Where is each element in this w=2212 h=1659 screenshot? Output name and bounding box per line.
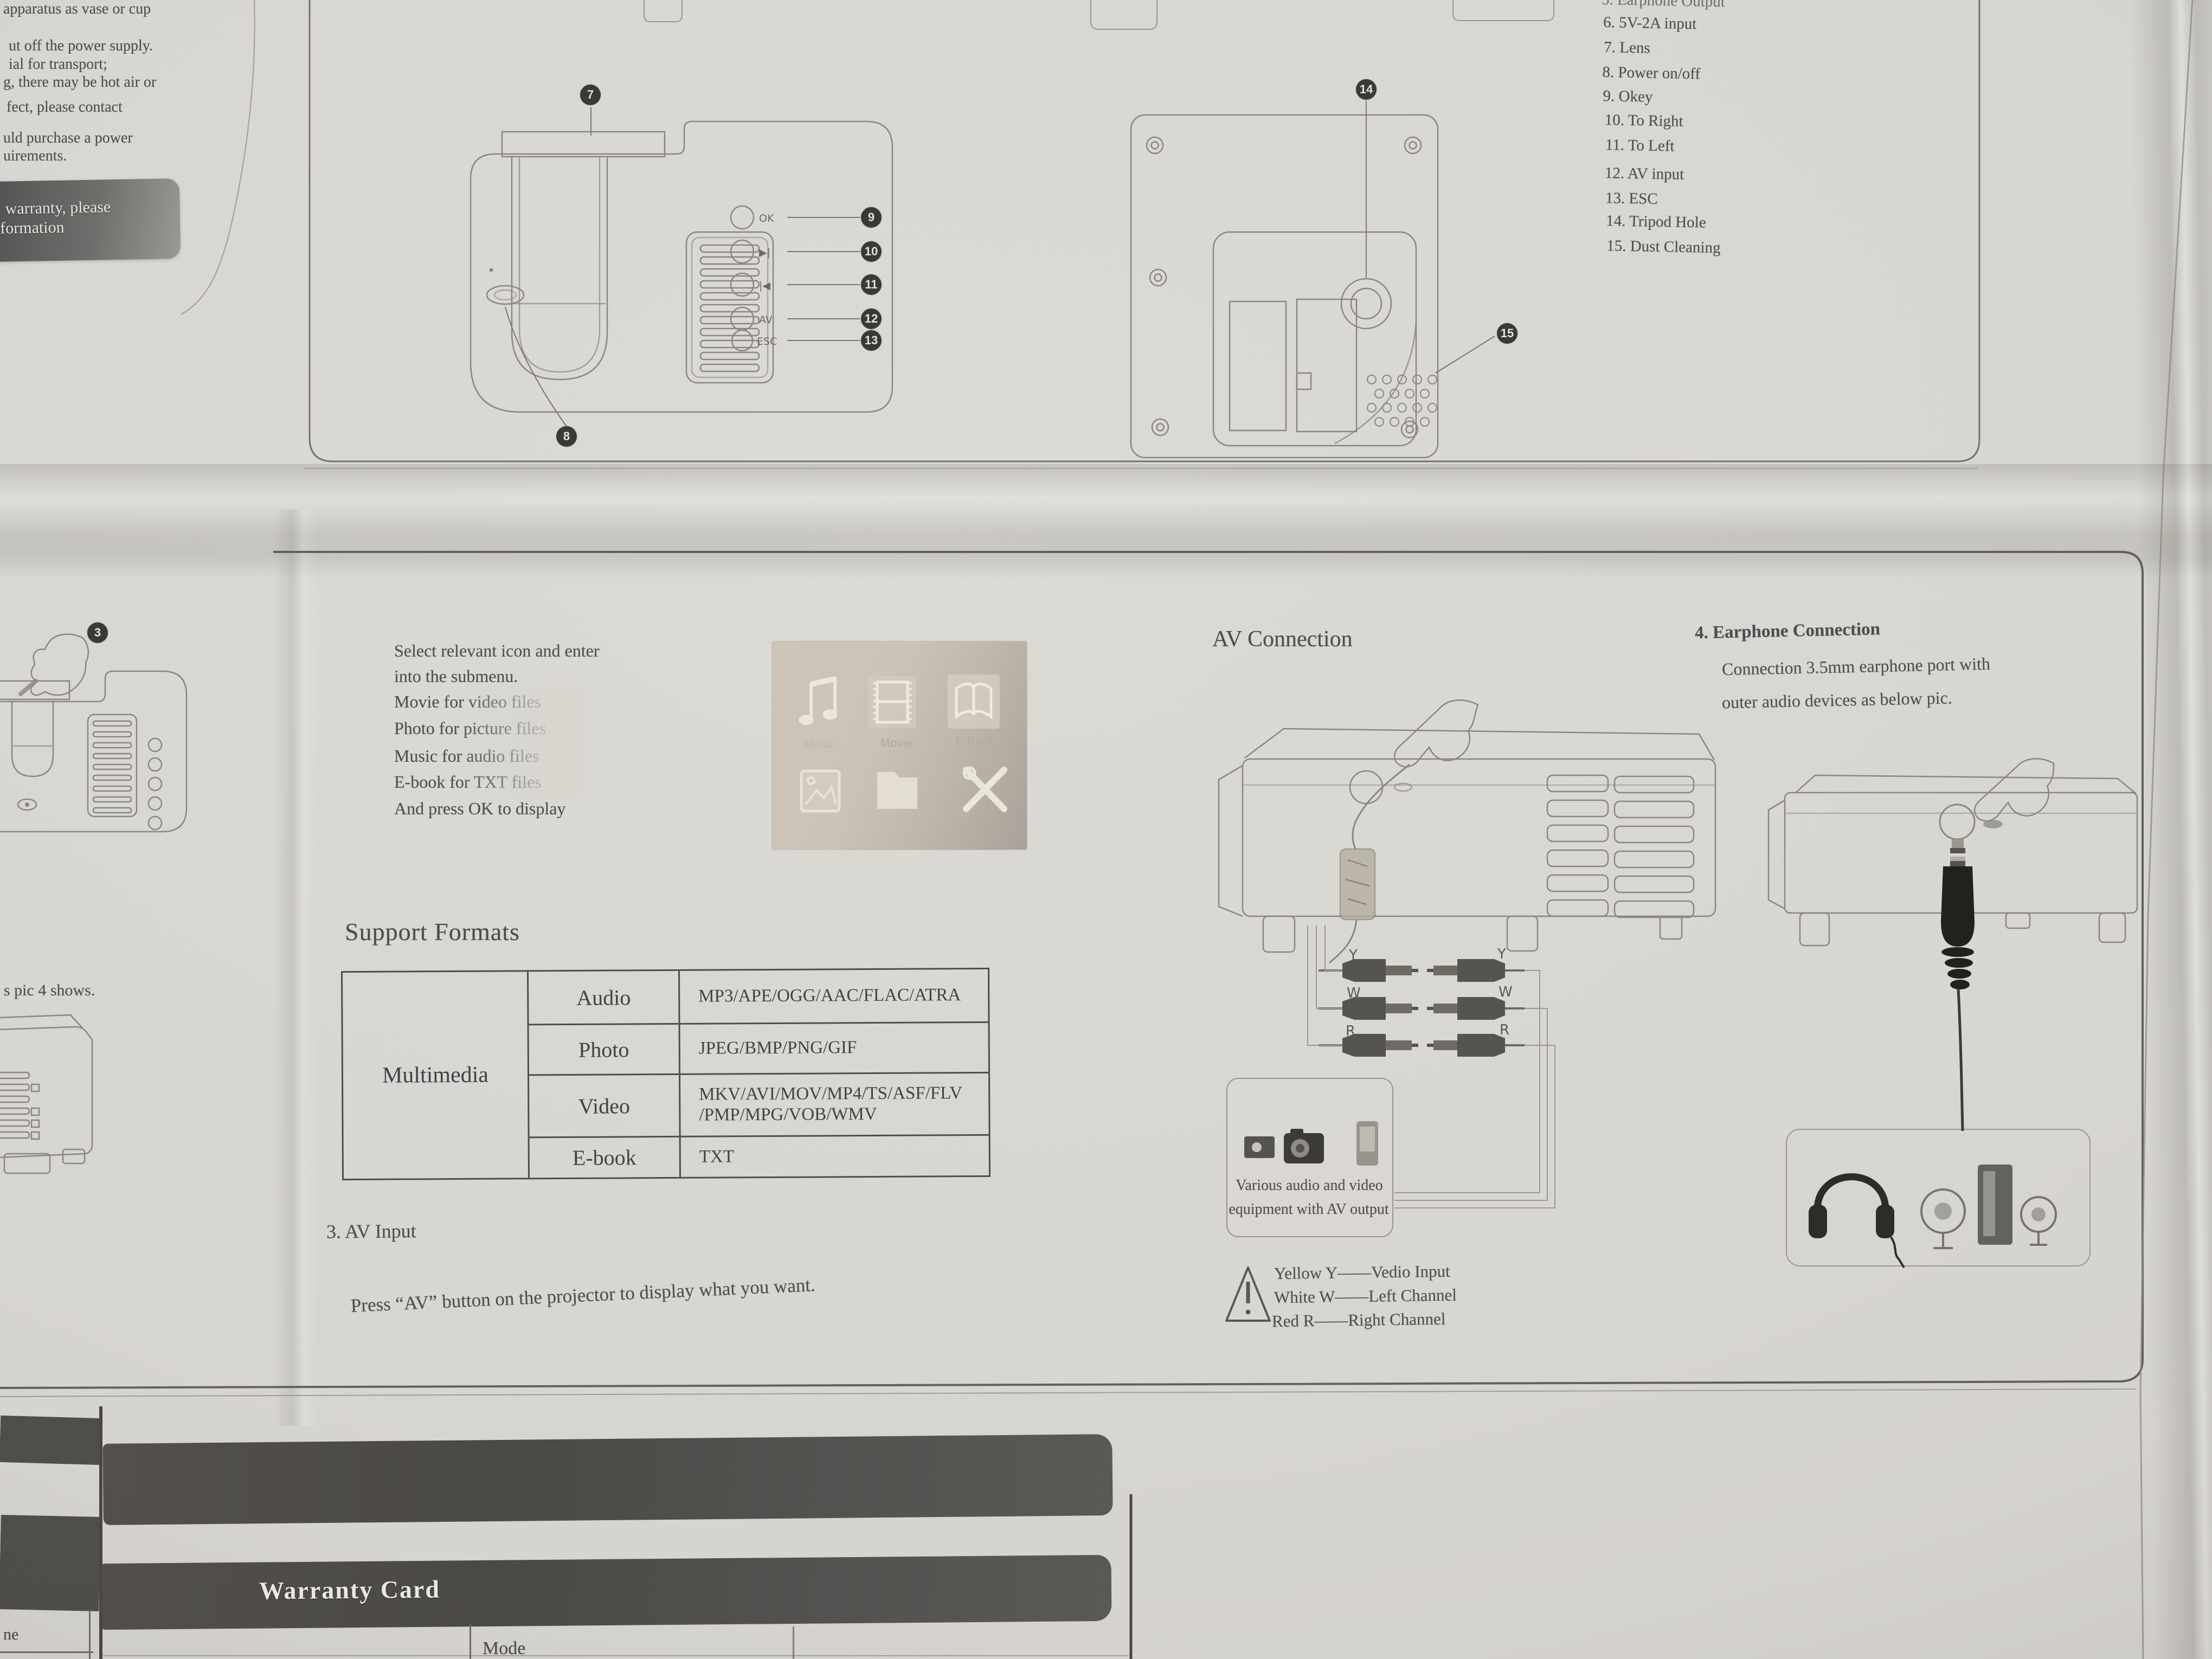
parts-list-item: 12. AV input — [1605, 165, 1684, 184]
rear-vents — [1547, 775, 1694, 917]
cable-label-y-right: Y — [1497, 946, 1506, 962]
parts-list: 5. Earphone Output 6. 5V-2A input 7. Len… — [1596, 0, 1883, 287]
table-category: Audio — [529, 971, 680, 1024]
equipment-caption-line: Various audio and video — [1231, 1178, 1388, 1194]
instruction-line: Select relevant icon and enter — [394, 641, 599, 660]
fragment-line: uld purchase a power — [3, 130, 133, 147]
projector-bottom-view-diagram — [1131, 101, 1495, 458]
left-side-view-diagram — [0, 1015, 92, 1173]
earphone-plug — [1941, 839, 1975, 989]
earphone-heading: 4. Earphone Connection — [1695, 619, 1881, 642]
cable-label-r-right: R — [1500, 1022, 1509, 1038]
fragment-line: apparatus as vase or cup — [3, 1, 151, 18]
ok-button-label: OK — [759, 213, 774, 224]
av-connection-diagram — [1219, 700, 1715, 963]
fragment-line: g, there may be hot air or — [3, 74, 156, 91]
callout-9: 9 — [861, 207, 882, 228]
warranty-card-title: Warranty Card — [259, 1575, 440, 1605]
cable-label-w-left: W — [1347, 985, 1361, 1001]
speaker-holes — [1367, 375, 1437, 426]
warranty-box-line: formation — [0, 218, 65, 237]
av-button-label: AV — [759, 314, 773, 326]
vertical-crease-left — [274, 510, 319, 1426]
parts-list-item: 8. Power on/off — [1602, 64, 1700, 83]
audio-devices-box — [1786, 1129, 2091, 1266]
vertical-fold-crease — [2130, 0, 2212, 1659]
pic4-caption: s pic 4 shows. — [4, 981, 95, 999]
callout-7: 7 — [580, 85, 601, 105]
pointing-hand-icon — [1394, 700, 1478, 767]
manual-photo: OK ▶| |◀ AV ESC — [0, 0, 2212, 1659]
cable-label-w-right: W — [1499, 984, 1513, 1000]
tripod-hole — [1341, 279, 1391, 329]
callout-15: 15 — [1497, 323, 1517, 344]
pointing-hand-icon — [31, 634, 88, 696]
label-panel — [1297, 299, 1356, 432]
support-formats-heading: Support Formats — [345, 918, 520, 946]
battery-door-panel — [1230, 301, 1286, 430]
table-vertical-line — [470, 1624, 471, 1659]
earphone-connection-diagram — [1769, 758, 2137, 1131]
lens-cover-plate — [502, 132, 665, 157]
av-plug — [1340, 849, 1375, 919]
warranty-box-line: warranty, please — [5, 198, 111, 217]
warning-line: Red R——Right Channel — [1272, 1310, 1446, 1331]
warranty-note-box: warranty, please formation — [0, 178, 181, 262]
cut-diagram-remnants — [644, 0, 1554, 29]
prev-button-label: |◀ — [759, 280, 770, 292]
warning-icon — [1226, 1268, 1270, 1321]
parts-list-item: 14. Tripod Hole — [1606, 213, 1706, 232]
table-formats: MKV/AVI/MOV/MP4/TS/ASF/FLV /PMP/MPG/VOB/… — [680, 1073, 989, 1136]
warning-line: White W——Left Channel — [1274, 1286, 1457, 1307]
callout-10: 10 — [861, 241, 882, 262]
vent-grille — [686, 232, 773, 383]
left-strip-fragment: ne — [3, 1625, 18, 1643]
cable-label-y-left: Y — [1348, 947, 1358, 963]
mode-label: Mode — [483, 1638, 525, 1658]
callout-11: 11 — [861, 274, 882, 295]
callout-14: 14 — [1356, 79, 1377, 100]
faded-print-area — [458, 682, 583, 799]
table-category: Video — [529, 1075, 681, 1136]
callout-13: 13 — [861, 330, 882, 351]
menu-item-ebook: E-Book — [949, 734, 1001, 748]
horizontal-fold-crease — [0, 464, 2212, 579]
menu-item-music: Music — [798, 737, 841, 751]
fragment-line: ial for transport; — [9, 56, 107, 73]
left-top-view-diagram — [0, 634, 187, 832]
parts-list-item: 13. ESC — [1605, 190, 1658, 208]
projector-top-view-diagram: OK ▶| |◀ AV ESC — [471, 107, 892, 427]
equipment-caption-line: equipment with AV output — [1229, 1201, 1389, 1218]
callout-8: 8 — [556, 426, 577, 447]
av-connection-heading: AV Connection — [1212, 627, 1353, 652]
cable-label-r-left: R — [1346, 1023, 1355, 1039]
fragment-line: fect, please contact — [7, 99, 123, 116]
lens-icon — [12, 702, 53, 776]
warranty-card-band — [101, 1555, 1112, 1630]
table-category: E-book — [530, 1137, 681, 1178]
parts-list-item: 5. Earphone Output — [1602, 0, 1725, 11]
left-strip-band-1 — [0, 1416, 100, 1465]
line-art-overlay: OK ▶| |◀ AV ESC — [0, 0, 2212, 1659]
power-icon — [18, 799, 36, 810]
callout-leader-lines — [505, 107, 860, 427]
vent-grille — [88, 715, 137, 816]
earphone-line: Connection 3.5mm earphone port with — [1722, 654, 1991, 679]
pointing-hand-icon — [1975, 758, 2054, 821]
av-input-body: Press “AV” button on the projector to di… — [350, 1275, 816, 1316]
fragment-line: ut off the power supply. — [9, 38, 153, 55]
callout-3: 3 — [87, 622, 108, 643]
table-formats: MP3/APE/OGG/AAC/FLAC/ATRA — [680, 969, 988, 1023]
table-formats: JPEG/BMP/PNG/GIF — [680, 1023, 988, 1073]
support-formats-table: Multimedia Audio MP3/APE/OGG/AAC/FLAC/AT… — [341, 968, 991, 1180]
table-formats: TXT — [681, 1136, 989, 1177]
next-button-label: ▶| — [759, 247, 770, 259]
left-strip-band-2 — [0, 1515, 101, 1611]
parts-list-item: 6. 5V-2A input — [1603, 14, 1697, 33]
control-buttons — [731, 206, 754, 351]
earphone-line: outer audio devices as below pic. — [1722, 689, 1952, 712]
power-icon — [487, 286, 524, 304]
table-vertical-line — [793, 1626, 794, 1659]
warning-line: Yellow Y——Vedio Input — [1274, 1262, 1450, 1283]
parts-list-item: 7. Lens — [1604, 39, 1650, 57]
table-category: Photo — [529, 1025, 680, 1074]
parts-list-item: 10. To Right — [1604, 112, 1683, 131]
table-cell-multimedia: Multimedia — [343, 972, 530, 1179]
callout-12: 12 — [861, 308, 882, 329]
fragment-line: uirements. — [3, 148, 67, 165]
av-input-heading: 3. AV Input — [326, 1220, 416, 1243]
lens-icon — [512, 157, 607, 380]
corner-screws — [1147, 137, 1421, 438]
parts-list-item: 9. Okey — [1603, 88, 1652, 106]
esc-button-label: ESC — [757, 336, 777, 348]
left-strip-table-hline — [0, 1651, 93, 1653]
instruction-line: And press OK to display — [394, 799, 565, 818]
menu-item-movie: Movie — [872, 736, 921, 750]
parts-list-item: 15. Dust Cleaning — [1606, 237, 1721, 257]
parts-list-item: 11. To Left — [1605, 137, 1675, 155]
bottom-dark-band — [102, 1434, 1113, 1525]
earphone-jack — [1940, 805, 1975, 839]
